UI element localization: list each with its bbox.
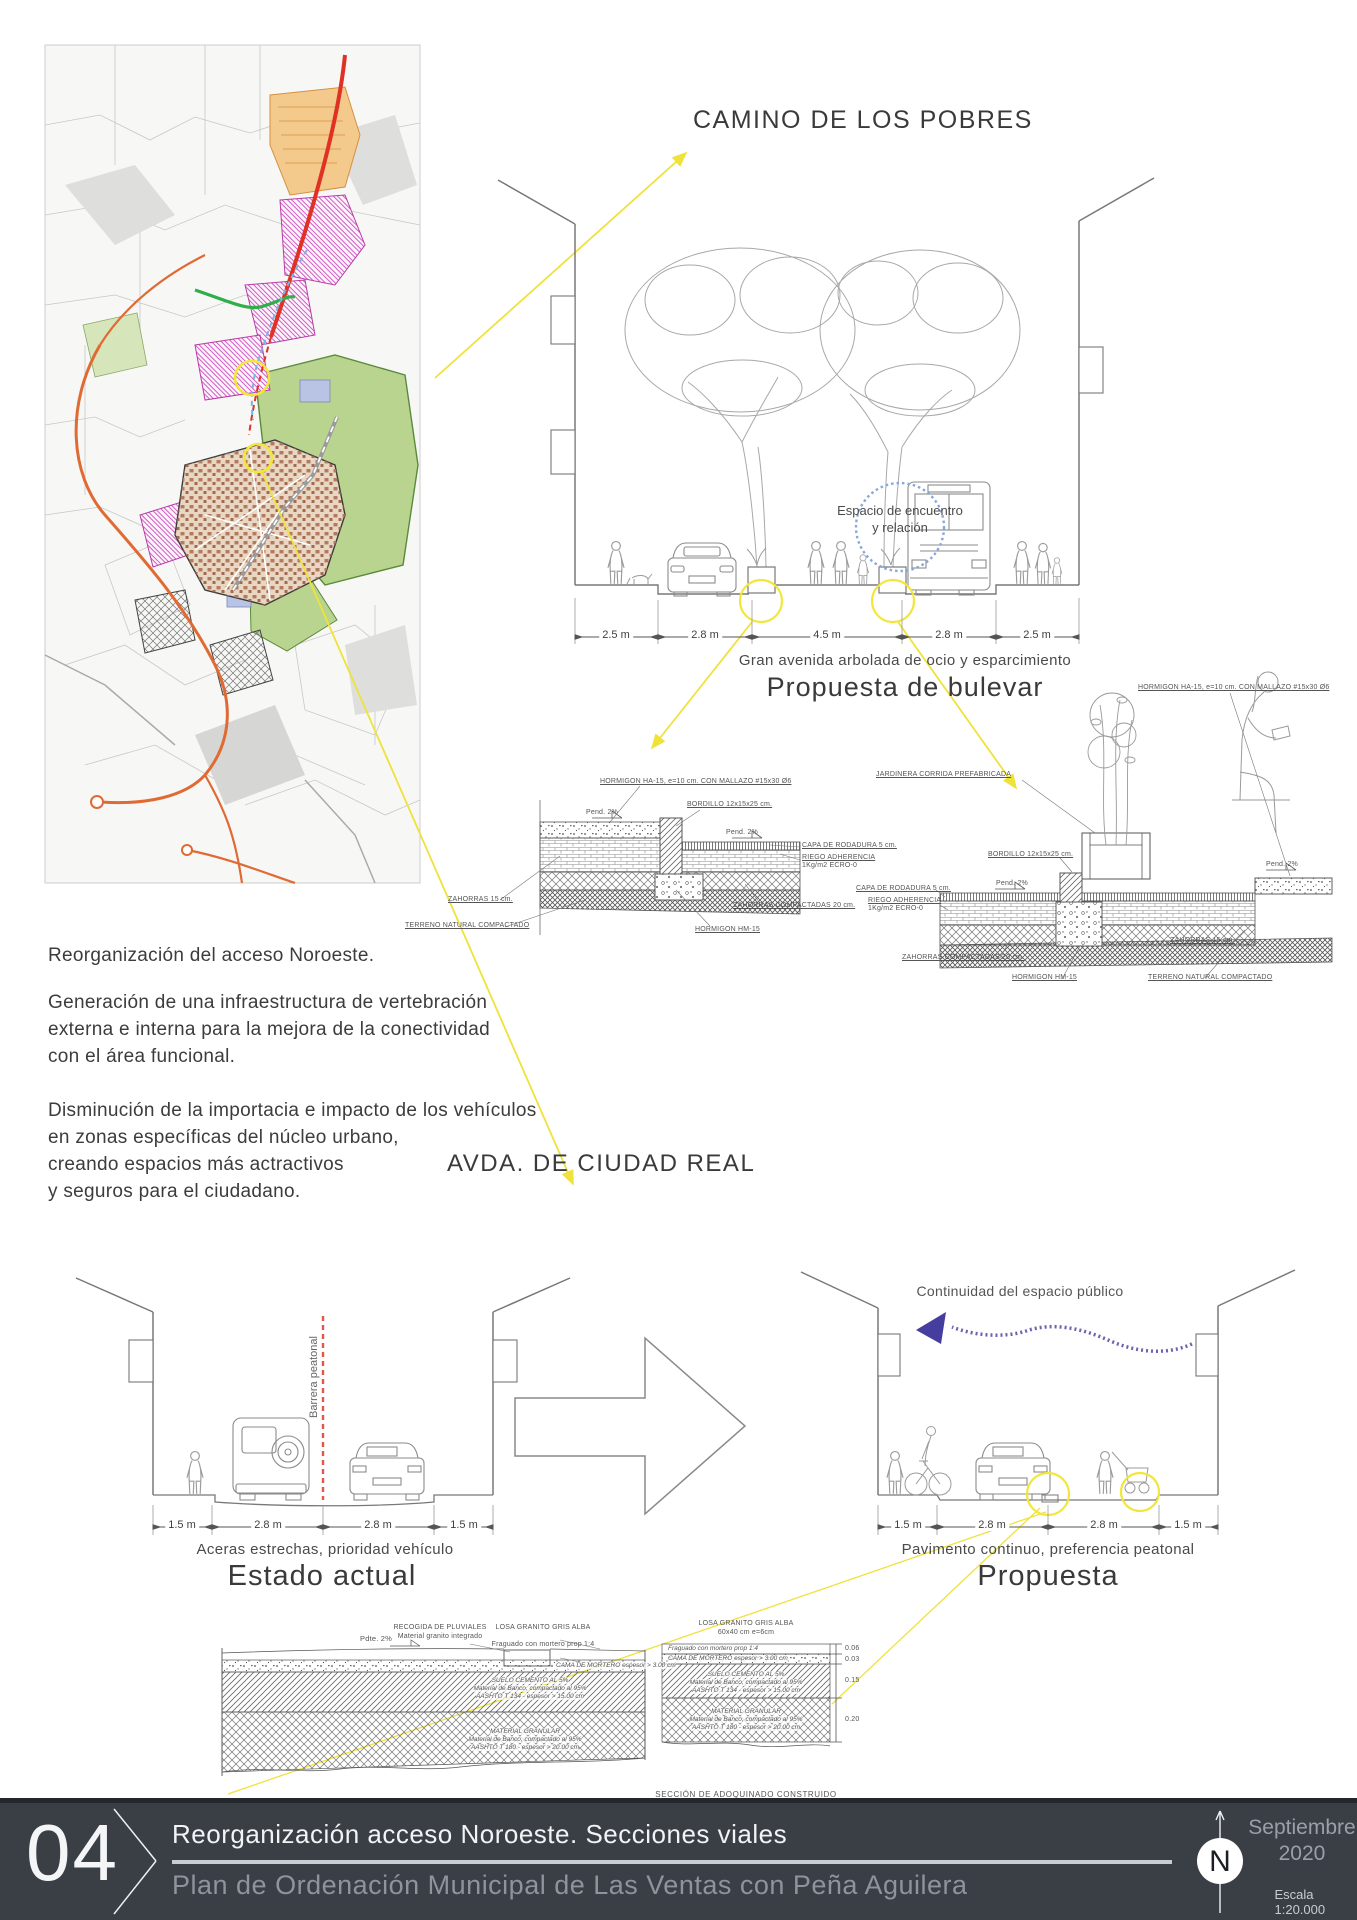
barrier-label: Barrera peatonal xyxy=(308,1336,320,1418)
label-bordillo: BORDILLO 12x15x25 cm. xyxy=(988,851,1073,858)
footer-scale: Escala 1:20.000 xyxy=(1275,1887,1330,1917)
estado-title: Estado actual xyxy=(228,1560,417,1593)
footer-date: Septiembre 2020 xyxy=(1248,1815,1355,1868)
label-losa: LOSA GRANITO GRIS ALBA xyxy=(699,1620,794,1627)
label-hormigon-hm: HORMIGON HM-15 xyxy=(1012,974,1077,981)
label-zahorras: ZAHORRAS 15 cm. xyxy=(1170,937,1235,944)
pavement-detail-right xyxy=(936,672,1332,979)
bulevar-subtitle: Propuesta de bulevar xyxy=(767,672,1044,703)
label-suelo-2: Material de Banco, compactado al 95% xyxy=(689,1679,802,1686)
dim-label: 2.5 m xyxy=(599,629,633,641)
bulevar-section-drawing xyxy=(498,178,1154,644)
dim-label: 1.5 m xyxy=(891,1519,925,1531)
label-fraguado: Fraguado con mortero prop 1:4 xyxy=(492,1641,595,1648)
thickness-value: 0.03 xyxy=(845,1656,859,1663)
dim-label: 2.5 m xyxy=(1020,629,1054,641)
label-granular-3: AASHTO T 180 - espesor > 20.00 cm xyxy=(692,1724,800,1731)
label-granular-2: Material de Banco, compactado al 95% xyxy=(468,1736,581,1743)
dim-label: 1.5 m xyxy=(447,1519,481,1531)
compass-n-label: N xyxy=(1209,1845,1231,1879)
label-suelo: SUELO CEMENTO AL 5% xyxy=(492,1677,569,1684)
thickness-value: 0.15 xyxy=(845,1677,859,1684)
city-map xyxy=(45,45,420,883)
dim-label: 2.8 m xyxy=(975,1519,1009,1531)
label-pend: Pend. 2% xyxy=(726,829,758,836)
intro-paragraph-1: Reorganización del acceso Noroeste. xyxy=(48,943,374,970)
dim-label: 4.5 m xyxy=(810,629,844,641)
dim-label: 2.8 m xyxy=(251,1519,285,1531)
intro-paragraph-2: Generación de una infraestructura de ver… xyxy=(48,990,490,1071)
estado-caption: Aceras estrechas, prioridad vehículo xyxy=(196,1541,453,1558)
label-pdte: Pdte. 2% xyxy=(360,1634,392,1643)
dim-label: 1.5 m xyxy=(1171,1519,1205,1531)
label-riego: RIEGO ADHERENCIA xyxy=(868,897,941,904)
label-hormigon-ha: HORMIGON HA-15, e=10 cm. CON MALLAZO #15… xyxy=(1138,684,1329,691)
footer-plan-title: Plan de Ordenación Municipal de Las Vent… xyxy=(172,1870,968,1901)
propuesta-drawing xyxy=(801,1270,1295,1535)
label-cama: CAMA DE MORTERO espesor > 3.00 cm xyxy=(556,1662,676,1669)
dim-label: 1.5 m xyxy=(165,1519,199,1531)
label-losa-2: 60x40 cm e=6cm xyxy=(718,1629,774,1636)
pavement-detail-left xyxy=(500,786,800,935)
label-hormigon-hm: HORMIGON HM-15 xyxy=(695,926,760,933)
camino-title: CAMINO DE LOS POBRES xyxy=(693,106,1033,135)
label-bordillo: BORDILLO 12x15x25 cm. xyxy=(687,801,772,808)
propuesta-title: Propuesta xyxy=(977,1560,1118,1593)
label-terreno: TERRENO NATURAL COMPACTADO xyxy=(405,922,529,929)
plan-sheet: CAMINO DE LOS POBRES AVDA. DE CIUDAD REA… xyxy=(0,0,1357,1920)
label-granular: MATERIAL GRANULAR xyxy=(490,1728,560,1735)
label-recogida: RECOGIDA DE PLUVIALES xyxy=(394,1624,487,1631)
label-riego2: 1Kg/m2 ECRO-0 xyxy=(868,905,923,912)
label-hormigon-ha: HORMIGON HA-15, e=10 cm. CON MALLAZO #15… xyxy=(600,778,791,785)
footer: 04 Reorganización acceso Noroeste. Secci… xyxy=(0,1798,1357,1920)
label-granular-2: Material de Banco, compactado al 95% xyxy=(689,1716,802,1723)
intro-paragraph-3: Disminución de la importacia e impacto d… xyxy=(48,1098,537,1206)
label-pend: Pend. 2% xyxy=(586,809,618,816)
label-suelo-3: AASHTO T 134 - espesor > 15.00 cm xyxy=(692,1687,800,1694)
label-capa: CAPA DE RODADURA 5 cm. xyxy=(802,842,897,849)
thickness-value: 0.20 xyxy=(845,1716,859,1723)
label-riego2: 1Kg/m2 ECRO-0 xyxy=(802,862,857,869)
label-fraguado: Fraguado con mortero prop 1:4 xyxy=(668,1645,758,1652)
label-suelo-3: AASHTO T 134 - espesor > 15.00 cm xyxy=(476,1693,584,1700)
adoquinado-detail-left xyxy=(222,1640,645,1776)
thickness-value: 0.06 xyxy=(845,1645,859,1652)
label-losa: LOSA GRANITO GRIS ALBA xyxy=(496,1624,591,1631)
footer-chevron-icon xyxy=(104,1803,174,1920)
label-zahorras: ZAHORRAS 15 cm. xyxy=(448,896,513,903)
label-suelo-2: Material de Banco, compactado al 95% xyxy=(473,1685,586,1692)
label-pend: Pend. 2% xyxy=(996,880,1028,887)
label-granular: MATERIAL GRANULAR xyxy=(711,1708,781,1715)
estado-actual-drawing xyxy=(76,1278,570,1535)
label-pend: Pend. 2% xyxy=(1266,861,1298,868)
label-cama: CAMA DE MORTERO espesor > 3.00 cm xyxy=(668,1655,788,1662)
footer-divider xyxy=(172,1860,1172,1864)
continuity-label: Continuidad del espacio público xyxy=(917,1283,1124,1299)
dim-label: 2.8 m xyxy=(361,1519,395,1531)
label-jardinera: JARDINERA CORRIDA PREFABRICADA xyxy=(876,771,1011,778)
label-riego: RIEGO ADHERENCIA xyxy=(802,854,875,861)
espacio-label: Espacio de encuentro y relación xyxy=(837,503,963,537)
label-zah-comp: ZAHORRAS COMPACTADAS 20 cm. xyxy=(902,954,1024,961)
bulevar-caption: Gran avenida arbolada de ocio y esparcim… xyxy=(739,652,1071,669)
label-capa: CAPA DE RODADURA 5 cm. xyxy=(856,885,951,892)
transition-arrow xyxy=(515,1338,745,1514)
dim-label: 2.8 m xyxy=(688,629,722,641)
dim-label: 2.8 m xyxy=(932,629,966,641)
label-suelo: SUELO CEMENTO AL 5% xyxy=(708,1671,785,1678)
label-terreno: TERRENO NATURAL COMPACTADO xyxy=(1148,974,1272,981)
label-granular-3: AASHTO T 180 - espesor > 20.00 cm xyxy=(471,1744,579,1751)
label-recogida-2: Material granito integrado xyxy=(398,1633,483,1640)
dim-label: 2.8 m xyxy=(1087,1519,1121,1531)
footer-sheet-title: Reorganización acceso Noroeste. Seccione… xyxy=(172,1819,787,1850)
propuesta-caption: Pavimento continuo, preferencia peatonal xyxy=(902,1541,1195,1558)
label-zah-comp: ZAHORRAS COMPACTADAS 20 cm. xyxy=(733,902,855,909)
